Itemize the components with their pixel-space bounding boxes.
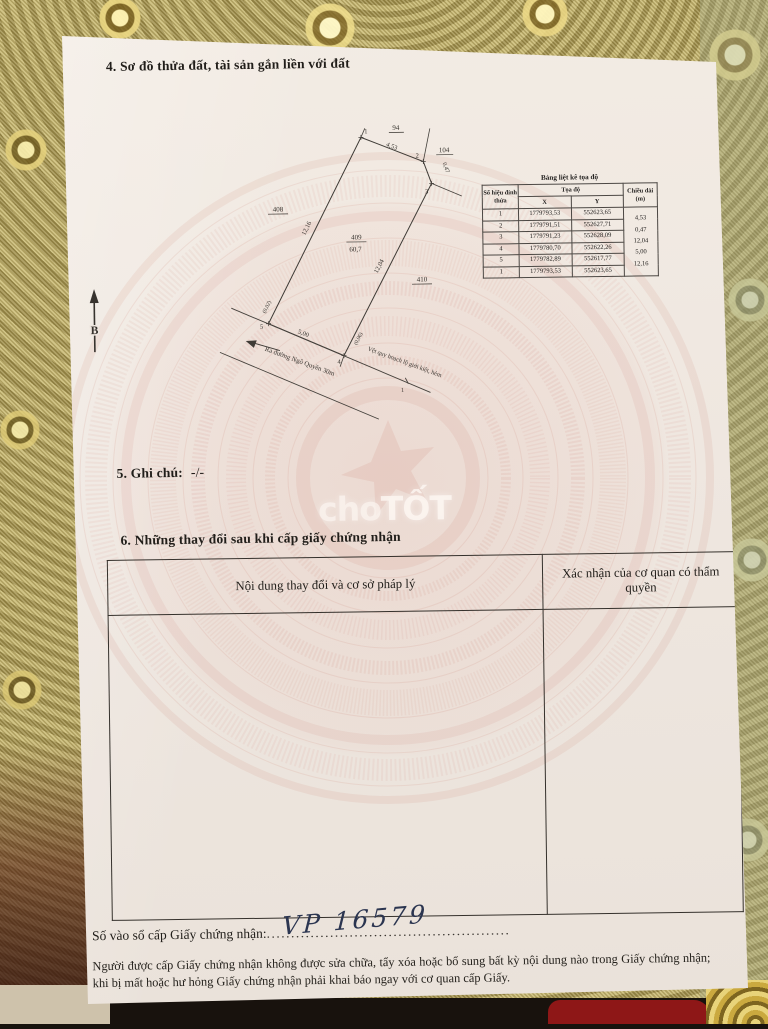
y-cell: 552617,77: [572, 253, 625, 265]
x-cell: 1779791,51: [519, 219, 572, 231]
y-cell: 552628,09: [571, 230, 624, 242]
chotot-watermark-cho: cho: [318, 489, 381, 529]
vertex-1-label: 1: [364, 128, 367, 135]
x-cell: 1779793,53: [519, 265, 572, 277]
length-column: 4,53 0,47 12,04 5,00 12,16: [623, 207, 658, 276]
footer-note: Người được cấp Giấy chứng nhận không đượ…: [92, 950, 710, 992]
parcel-408-label: 408: [273, 205, 284, 213]
certificate-page: 4. Sơ đồ thửa đất, tài sản gắn liền với …: [0, 0, 768, 1024]
vertex-3-label: 3: [425, 188, 428, 195]
section5-note: 5. Ghi chú:-/-: [116, 465, 204, 482]
col-header-x: X: [518, 196, 571, 209]
chotot-watermark-tot: TỐT: [381, 488, 452, 528]
col-header-y: Y: [571, 195, 624, 208]
section6-title: 6. Những thay đổi sau khi cấp giấy chứng…: [120, 529, 400, 549]
chotot-watermark: choTỐT: [318, 488, 451, 529]
vertex-cell: 2: [483, 220, 519, 232]
section5-label: 5. Ghi chú:: [116, 465, 183, 481]
parcel-409-label: 409: [351, 233, 362, 241]
planning-end-vertex-label: 1: [401, 388, 404, 394]
x-cell: 1779791,23: [519, 231, 572, 243]
vertex-2-label: 2: [416, 153, 419, 160]
edge-5-1-length: 12,16: [300, 220, 313, 237]
parcel-104-label: 104: [439, 146, 450, 154]
y-cell: 552623,65: [571, 207, 624, 219]
page-content: 4. Sơ đồ thửa đất, tài sản gắn liền với …: [0, 0, 768, 1029]
x-cell: 1779780,70: [519, 242, 572, 254]
edge-2-3-length: 0,47: [441, 162, 450, 174]
changes-col-confirm: Xác nhận của cơ quan có thẩm quyền: [543, 552, 739, 610]
length-value: 0,47: [624, 226, 657, 235]
north-arrow: B: [90, 289, 100, 352]
parcel-410-label: 410: [417, 275, 428, 283]
section4-title: 4. Sơ đồ thửa đất, tài sản gắn liền với …: [106, 56, 350, 75]
north-label: B: [91, 325, 99, 337]
changes-table: Nội dung thay đổi và cơ sở pháp lý Xác n…: [107, 551, 744, 921]
section5-value: -/-: [183, 465, 205, 480]
edge-3-4-length: 12,04: [373, 258, 386, 275]
vertex-5-offset: (0,02): [261, 299, 273, 314]
vertex-cell: 1: [483, 266, 519, 278]
col-header-vertex: Số hiệu đỉnh thửa: [482, 185, 518, 210]
vertex-4-offset: (0,06): [352, 331, 364, 346]
y-cell: 552623,65: [572, 265, 625, 277]
vertex-cell: 4: [483, 243, 519, 255]
length-value: 5,00: [625, 249, 658, 258]
x-cell: 1779782,89: [519, 254, 572, 266]
parcel-underlines: [267, 132, 455, 287]
length-value: 12,04: [624, 237, 657, 246]
vertex-5-label: 5: [260, 324, 263, 331]
changes-col-content: Nội dung thay đổi và cơ sở pháp lý: [107, 554, 543, 615]
road-label: Ra đường Ngô Quyền 30m: [264, 346, 336, 378]
edge-1-2-length: 4,53: [385, 141, 398, 152]
coordinate-table: Bảng liệt kê tọa độ Số hiệu đỉnh thửa Tọ…: [481, 172, 658, 278]
edge-4-5-length: 5,00: [297, 328, 310, 339]
length-value: 4,53: [624, 215, 657, 224]
registry-label: Số vào sổ cấp Giấy chứng nhận:: [92, 926, 267, 943]
parcel-94-label: 94: [392, 124, 400, 132]
changes-empty-row: [108, 607, 743, 921]
col-header-length: Chiều dài (m): [623, 183, 657, 207]
x-cell: 1779793,53: [518, 208, 571, 220]
parcel-409-area: 60,7: [349, 245, 362, 253]
y-cell: 552622,26: [571, 242, 624, 254]
coordinate-table-title: Bảng liệt kê tọa độ: [481, 172, 657, 182]
vertex-cell: 1: [482, 209, 518, 221]
changes-content-cell: [108, 609, 548, 920]
vertex-cell: 3: [483, 232, 519, 244]
changes-confirm-cell: [543, 607, 743, 915]
length-value: 12,16: [625, 260, 658, 269]
vertex-cell: 5: [483, 255, 519, 267]
y-cell: 552627,71: [571, 219, 624, 231]
red-object: [548, 1000, 710, 1024]
planning-strip-label: Vệt quy hoạch lộ giới kiệt, hẻm: [367, 346, 443, 380]
